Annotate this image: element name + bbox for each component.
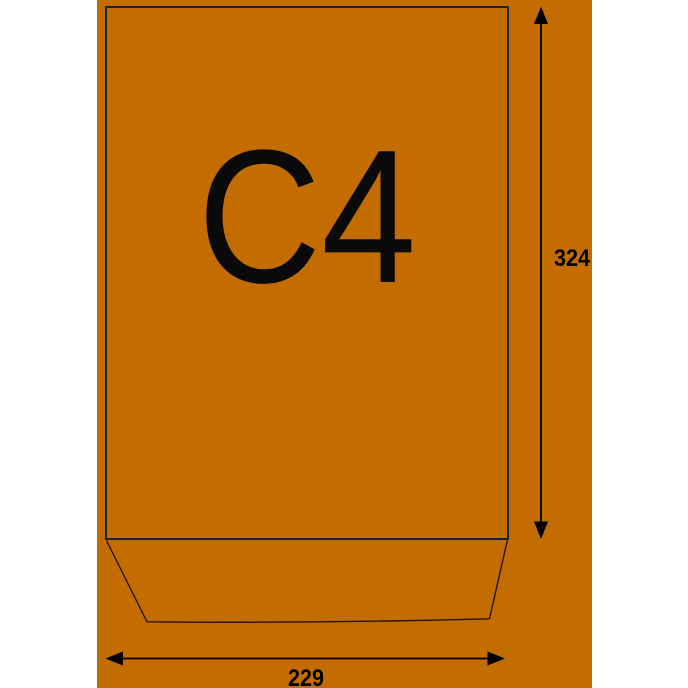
arrow-up-icon bbox=[534, 7, 548, 25]
envelope-size-label: C4 bbox=[125, 122, 489, 312]
height-dimension-label: 324 bbox=[554, 247, 590, 271]
diagram-overlay bbox=[0, 0, 688, 688]
width-dimension-label: 229 bbox=[288, 667, 324, 688]
height-dimension-arrow bbox=[534, 7, 548, 540]
diagram-canvas: C4 324 229 bbox=[0, 0, 688, 688]
envelope-flap bbox=[107, 541, 508, 623]
width-dimension-arrow bbox=[106, 652, 506, 666]
arrow-down-icon bbox=[534, 522, 548, 540]
arrow-right-icon bbox=[488, 652, 506, 666]
arrow-left-icon bbox=[106, 652, 124, 666]
